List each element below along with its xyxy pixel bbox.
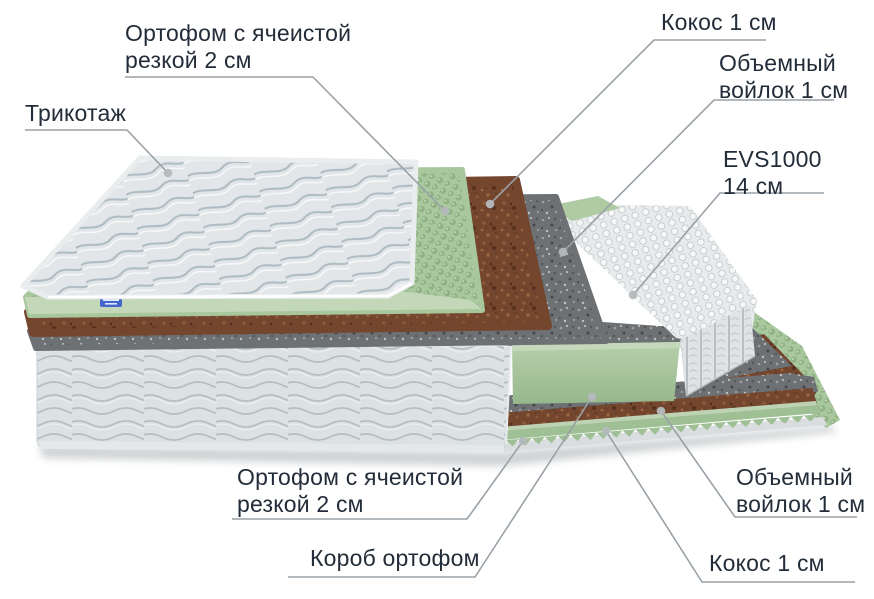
mattress-box <box>37 344 511 452</box>
label-ortofom-bottom: Ортофом с ячеистой резкой 2 см <box>237 464 463 518</box>
label-line: Кокос 1 см <box>661 9 777 36</box>
dot-ortofom-bottom <box>519 437 528 446</box>
label-korob: Короб ортофом <box>310 545 480 572</box>
block-front-face <box>512 342 680 404</box>
label-line: Короб ортофом <box>310 545 480 572</box>
top-fan-layers <box>23 158 606 348</box>
label-voilok-top: Объемный войлок 1 см <box>719 50 848 104</box>
dot-kokos-top <box>486 200 495 209</box>
label-line: войлок 1 см <box>719 77 848 104</box>
label-line: Объемный <box>736 464 865 491</box>
dot-evs <box>629 291 638 300</box>
label-voilok-bottom: Объемный войлок 1 см <box>736 464 865 518</box>
label-line: резкой 2 см <box>237 491 463 518</box>
label-line: Трикотаж <box>25 100 126 127</box>
mattress-layers-diagram: Ортофом с ячеистой резкой 2 см Трикотаж … <box>0 0 874 599</box>
dot-trikotazh <box>164 169 173 178</box>
knit-top-layer <box>23 158 416 297</box>
label-trikotazh: Трикотаж <box>25 100 126 127</box>
dot-kokos-bottom <box>602 427 611 436</box>
dot-ortofom-top <box>441 207 450 216</box>
label-line: EVS1000 <box>723 146 822 173</box>
label-line: 14 см <box>723 173 822 200</box>
label-line: резкой 2 см <box>125 47 351 74</box>
label-line: Объемный <box>719 50 848 77</box>
box-front-face <box>37 344 511 449</box>
dot-voilok-top <box>559 248 568 257</box>
label-line: Кокос 1 см <box>709 550 825 577</box>
label-kokos-top: Кокос 1 см <box>661 9 777 36</box>
foam-box-block <box>512 342 681 404</box>
label-kokos-bottom: Кокос 1 см <box>709 550 825 577</box>
dot-voilok-bottom <box>657 407 666 416</box>
label-ortofom-top: Ортофом с ячеистой резкой 2 см <box>125 20 351 74</box>
label-line: Ортофом с ячеистой <box>125 20 351 47</box>
label-evs: EVS1000 14 см <box>723 146 822 200</box>
label-line: войлок 1 см <box>736 491 865 518</box>
label-line: Ортофом с ячеистой <box>237 464 463 491</box>
dot-korob <box>588 393 597 402</box>
